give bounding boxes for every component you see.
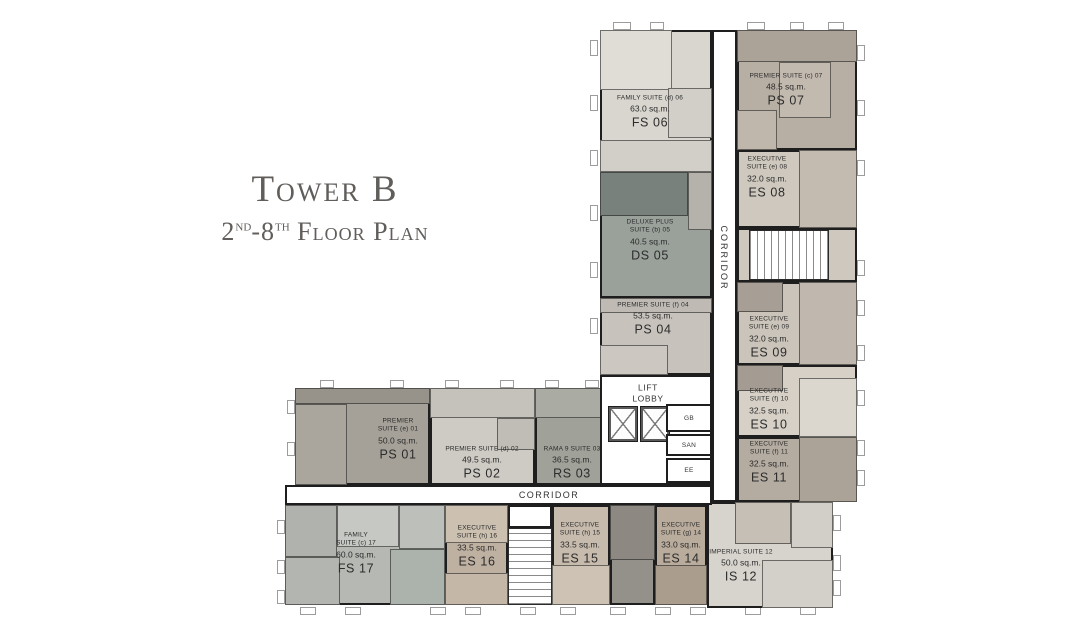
balcony-tick xyxy=(520,607,536,615)
unit-label-ps-01: PREMIERSUITE (e) 0150.0 sq.m.PS 01 xyxy=(378,417,418,462)
unit-fs-17-room xyxy=(390,549,445,605)
unit-name: SUITE (h) 15 xyxy=(560,530,600,538)
stair-landing-lower xyxy=(508,505,552,528)
unit-name: EXECUTIVE xyxy=(560,521,600,529)
balcony-tick xyxy=(857,100,865,116)
unit-area: 49.5 sq.m. xyxy=(445,455,518,466)
service-room-gb: GB xyxy=(666,404,712,432)
balcony-tick xyxy=(590,95,598,111)
unit-label-es-14: EXECUTIVESUITE (g) 1433.0 sq.m.ES 14 xyxy=(661,521,701,566)
balcony-tick xyxy=(790,22,804,30)
unit-ps-07-room xyxy=(737,30,857,62)
unit-label-ds-05: DELUXE PLUSSUITE (b) 0540.5 sq.m.DS 05 xyxy=(627,218,674,263)
balcony-tick xyxy=(590,262,598,278)
unit-code: PS 02 xyxy=(445,466,518,482)
bath-core-lower-room xyxy=(610,505,655,560)
unit-name: FAMILY xyxy=(336,531,376,539)
unit-ps-01-room xyxy=(295,404,347,485)
unit-label-es-11: EXECUTIVESUITE (f) 1132.5 sq.m.ES 11 xyxy=(749,440,789,485)
unit-name: EXECUTIVE xyxy=(749,315,789,323)
floor-range-end-ordinal: th xyxy=(275,221,290,233)
balcony-tick xyxy=(857,45,865,61)
balcony-tick xyxy=(345,607,361,615)
unit-es-09-room xyxy=(799,282,857,365)
balcony-tick xyxy=(320,380,334,388)
balcony-tick xyxy=(857,300,865,316)
balcony-tick xyxy=(650,22,664,30)
unit-area: 63.0 sq.m. xyxy=(617,104,683,115)
unit-code: FS 17 xyxy=(336,560,376,576)
service-room-label: SAN xyxy=(682,442,696,449)
unit-name: IMPERIAL SUITE 12 xyxy=(709,549,772,557)
balcony-tick xyxy=(747,22,765,30)
unit-area: 50.0 sq.m. xyxy=(709,558,772,569)
balcony-tick xyxy=(745,607,761,615)
unit-name: SUITE (e) 09 xyxy=(749,324,789,332)
unit-name: SUITE (b) 05 xyxy=(627,227,674,235)
balcony-tick xyxy=(277,520,285,534)
floor-plan-text: Floor Plan xyxy=(290,217,429,246)
balcony-tick xyxy=(445,380,459,388)
balcony-tick xyxy=(833,515,841,531)
stair-upper xyxy=(749,230,829,280)
unit-name: SUITE (e) 01 xyxy=(378,426,418,434)
unit-code: ES 11 xyxy=(749,469,789,485)
balcony-tick xyxy=(800,607,816,615)
unit-name: EXECUTIVE xyxy=(749,440,789,448)
balcony-tick xyxy=(857,345,865,361)
balcony-tick xyxy=(590,205,598,221)
unit-es-10-room xyxy=(799,378,857,437)
unit-area: 33.5 sq.m. xyxy=(457,542,497,553)
unit-label-ps-02: PREMIER SUITE (d) 0249.5 sq.m.PS 02 xyxy=(445,446,518,483)
floor-range: 2nd-8th Floor Plan xyxy=(200,217,450,247)
service-room-ee: EE xyxy=(666,458,712,483)
floor-range-start-ordinal: nd xyxy=(235,221,251,233)
balcony-tick xyxy=(857,260,865,276)
plan-title: Tower B 2nd-8th Floor Plan xyxy=(200,168,450,247)
unit-area: 40.5 sq.m. xyxy=(627,236,674,247)
unit-code: ES 15 xyxy=(560,550,600,566)
balcony-tick xyxy=(610,607,626,615)
service-room-label: GB xyxy=(684,415,694,422)
unit-es-14-room xyxy=(655,565,707,605)
unit-label-es-16: EXECUTIVESUITE (h) 1633.5 sq.m.ES 16 xyxy=(457,524,497,569)
balcony-tick xyxy=(613,22,631,30)
unit-name: PREMIER xyxy=(378,417,418,425)
floor-range-end: -8 xyxy=(251,217,275,246)
unit-name: PREMIER SUITE (d) 02 xyxy=(445,446,518,454)
unit-ds-05-room xyxy=(688,172,712,230)
unit-code: FS 06 xyxy=(617,115,683,131)
corridor-vertical-label: CORRIDOR xyxy=(719,226,729,291)
unit-area: 50.0 sq.m. xyxy=(378,435,418,446)
balcony-tick xyxy=(857,390,865,406)
balcony-tick xyxy=(655,607,671,615)
unit-code: PS 04 xyxy=(617,322,689,338)
unit-name: EXECUTIVE xyxy=(661,521,701,529)
balcony-tick xyxy=(828,22,844,30)
unit-code: ES 14 xyxy=(661,550,701,566)
unit-name: SUITE (c) 17 xyxy=(336,540,376,548)
unit-name: PREMIER SUITE (f) 04 xyxy=(617,302,689,310)
unit-code: DS 05 xyxy=(627,247,674,263)
unit-name: PREMIER SUITE (c) 07 xyxy=(750,73,823,81)
unit-name: SUITE (f) 10 xyxy=(749,396,789,404)
corridor-horizontal xyxy=(285,485,712,505)
unit-name: EXECUTIVE xyxy=(747,155,787,163)
balcony-tick xyxy=(300,607,316,615)
balcony-tick xyxy=(833,580,841,596)
unit-name: FAMILY SUITE (d) 06 xyxy=(617,95,683,103)
balcony-tick xyxy=(465,607,481,615)
unit-code: ES 09 xyxy=(749,344,789,360)
balcony-tick xyxy=(277,560,285,574)
unit-ds-05-room xyxy=(600,172,688,216)
balcony-tick xyxy=(287,442,295,456)
unit-area: 32.0 sq.m. xyxy=(749,333,789,344)
unit-es-16-room xyxy=(445,573,508,605)
unit-name: DELUXE PLUS xyxy=(627,218,674,226)
balcony-tick xyxy=(590,40,598,56)
unit-code: PS 01 xyxy=(378,446,418,462)
unit-code: IS 12 xyxy=(709,569,772,585)
lift-lobby-label-line: LIFT xyxy=(632,383,663,394)
balcony-tick xyxy=(390,380,404,388)
balcony-tick xyxy=(833,555,841,571)
balcony-tick xyxy=(590,318,598,334)
balcony-tick xyxy=(545,380,559,388)
unit-code: PS 07 xyxy=(750,93,823,109)
unit-code: RS 03 xyxy=(544,466,601,482)
unit-area: 32.5 sq.m. xyxy=(749,405,789,416)
unit-name: SUITE (g) 14 xyxy=(661,530,701,538)
unit-ps-04-room xyxy=(600,345,668,375)
unit-name: SUITE (h) 16 xyxy=(457,533,497,541)
unit-label-ps-07: PREMIER SUITE (c) 0748.5 sq.m.PS 07 xyxy=(750,73,823,110)
unit-label-ps-04: PREMIER SUITE (f) 0453.5 sq.m.PS 04 xyxy=(617,302,689,339)
unit-ps-01-room xyxy=(295,388,430,404)
unit-es-08-room xyxy=(799,150,857,228)
balcony-tick xyxy=(430,607,446,615)
unit-ps-02-room xyxy=(430,388,535,418)
unit-area: 33.5 sq.m. xyxy=(560,539,600,550)
balcony-tick xyxy=(590,150,598,166)
unit-es-09-room xyxy=(737,282,783,312)
unit-es-15-room xyxy=(552,565,610,605)
unit-ps-07-room xyxy=(737,110,777,150)
unit-fs-17-room xyxy=(285,557,340,605)
floor-range-start: 2 xyxy=(221,217,235,246)
unit-name: SUITE (f) 11 xyxy=(749,449,789,457)
balcony-tick xyxy=(287,400,295,414)
unit-is-12-room xyxy=(791,502,833,548)
lift-shaft xyxy=(641,407,669,441)
unit-name: EXECUTIVE xyxy=(749,387,789,395)
balcony-tick xyxy=(690,607,706,615)
tower-name: Tower B xyxy=(200,168,450,211)
lift-lobby-label-line: LOBBY xyxy=(632,394,663,405)
service-room-label: EE xyxy=(684,467,693,474)
balcony-tick xyxy=(857,160,865,176)
unit-code: ES 10 xyxy=(749,416,789,432)
unit-area: 36.5 sq.m. xyxy=(544,455,601,466)
unit-area: 48.5 sq.m. xyxy=(750,82,823,93)
unit-fs-06-room xyxy=(600,30,672,90)
corridor-horizontal-label: CORRIDOR xyxy=(519,490,579,500)
lift-lobby-label: LIFTLOBBY xyxy=(632,383,663,406)
unit-label-fs-17: FAMILYSUITE (c) 1760.0 sq.m.FS 17 xyxy=(336,531,376,576)
balcony-tick xyxy=(560,607,576,615)
balcony-tick xyxy=(585,380,599,388)
unit-name: RAMA 9 SUITE 03 xyxy=(544,446,601,454)
lift-shaft xyxy=(609,407,637,441)
service-room-san: SAN xyxy=(666,434,712,456)
floor-plan-page: Tower B 2nd-8th Floor Plan PREMIERSUITE … xyxy=(0,0,1080,640)
unit-fs-17-room xyxy=(285,505,337,557)
unit-es-11-room xyxy=(799,437,857,502)
balcony-tick xyxy=(277,590,285,604)
unit-code: ES 08 xyxy=(747,184,787,200)
unit-label-es-08: EXECUTIVESUITE (e) 0832.0 sq.m.ES 08 xyxy=(747,155,787,200)
balcony-tick xyxy=(857,440,865,456)
unit-label-fs-06: FAMILY SUITE (d) 0663.0 sq.m.FS 06 xyxy=(617,95,683,132)
balcony-tick xyxy=(857,470,865,486)
unit-area: 32.0 sq.m. xyxy=(747,173,787,184)
unit-is-12-room xyxy=(735,502,791,544)
unit-label-es-15: EXECUTIVESUITE (h) 1533.5 sq.m.ES 15 xyxy=(560,521,600,566)
unit-fs-06-room xyxy=(600,140,712,172)
unit-area: 53.5 sq.m. xyxy=(617,311,689,322)
unit-name: SUITE (e) 08 xyxy=(747,164,787,172)
unit-label-es-09: EXECUTIVESUITE (e) 0932.0 sq.m.ES 09 xyxy=(749,315,789,360)
stair-lower xyxy=(508,528,552,605)
unit-label-rs-03: RAMA 9 SUITE 0336.5 sq.m.RS 03 xyxy=(544,446,601,483)
unit-area: 32.5 sq.m. xyxy=(749,458,789,469)
unit-label-is-12: IMPERIAL SUITE 1250.0 sq.m.IS 12 xyxy=(709,549,772,586)
unit-name: EXECUTIVE xyxy=(457,524,497,532)
unit-code: ES 16 xyxy=(457,553,497,569)
balcony-tick xyxy=(500,380,514,388)
unit-area: 60.0 sq.m. xyxy=(336,549,376,560)
unit-label-es-10: EXECUTIVESUITE (f) 1032.5 sq.m.ES 10 xyxy=(749,387,789,432)
unit-area: 33.0 sq.m. xyxy=(661,539,701,550)
unit-fs-17-room xyxy=(399,505,445,549)
